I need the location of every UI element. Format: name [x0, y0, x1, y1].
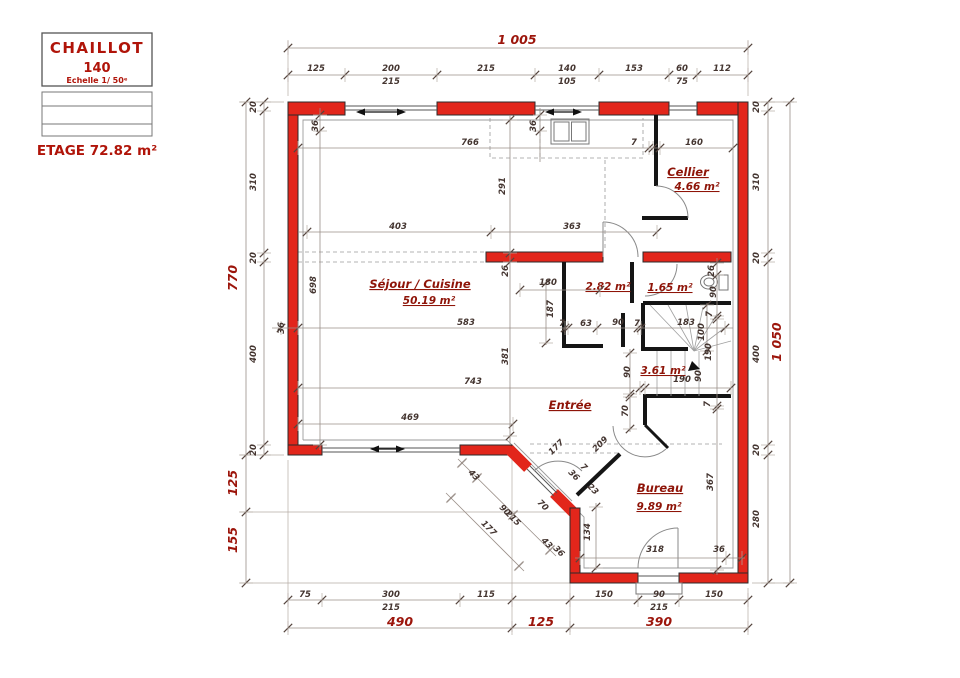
toilet-tank	[719, 275, 728, 290]
room-label-bureau: Bureau	[637, 481, 683, 495]
dim-label: 20	[249, 252, 259, 264]
room-area-bureau: 9.89 m²	[636, 501, 682, 513]
dim-label: 112	[713, 64, 731, 74]
dim-label: 105	[558, 77, 576, 87]
dim-label: 7	[705, 311, 715, 317]
room-label-entree: Entrée	[549, 398, 592, 412]
dim-label: 200	[382, 64, 400, 74]
room-label-sejour-cuisine: Séjour / Cuisine	[369, 277, 471, 291]
dim-label: 140	[558, 64, 576, 74]
dim-label: 390	[646, 614, 672, 629]
wall-top-b	[437, 102, 535, 115]
floor-area-label: ETAGE 72.82 m²	[37, 143, 157, 159]
dimension-annotations: 1 00512520021521514010515360751122031020…	[225, 32, 797, 635]
wall-bottom-a	[570, 573, 638, 583]
wall-left	[288, 102, 298, 455]
dim-label: 400	[249, 345, 259, 364]
dim-label: 583	[457, 318, 475, 328]
wall-bureau-left	[570, 508, 580, 583]
wall-bottom-left-a	[288, 445, 322, 455]
dim-label: 1 005	[497, 32, 536, 47]
dim-label: 280	[752, 510, 762, 528]
floor-plan-canvas: CHAILLOT 140 Echelle 1/ 50ᵉ ETAGE 72.82 …	[0, 0, 960, 678]
dim-label: 177	[479, 519, 499, 539]
dim-label: 70	[621, 405, 631, 417]
dim-label: 63	[580, 319, 592, 329]
stair-direction-arrow	[688, 361, 700, 371]
dim-label: 26	[707, 265, 717, 277]
dim-label: 7	[559, 319, 565, 329]
dim-label: 490	[386, 614, 413, 629]
model-number: 140	[83, 61, 110, 76]
kitchen-sink-outline	[551, 119, 589, 144]
dim-label: 125	[225, 470, 240, 496]
dim-label: 90	[709, 286, 719, 298]
dim-label: 153	[625, 64, 643, 74]
dim-label: 20	[249, 101, 259, 113]
floor-plan-page: CHAILLOT 140 Echelle 1/ 50ᵉ ETAGE 72.82 …	[0, 0, 960, 678]
dim-label: 90	[623, 366, 633, 378]
dim-label: 75	[676, 77, 688, 87]
bath-door-arc	[603, 222, 638, 257]
room-area-cellier: 4.66 m²	[673, 181, 720, 193]
dim-label: 7	[631, 138, 637, 148]
scale-label: Echelle 1/ 50ᵉ	[66, 76, 127, 85]
bureau-door-arc	[613, 426, 666, 457]
dim-label: 70	[535, 498, 550, 513]
wall-bottom-left-b	[460, 445, 512, 455]
dim-label: 310	[752, 173, 762, 191]
dim-label: 215	[477, 64, 495, 74]
dim-label: 367	[706, 473, 716, 491]
dim-label: 20	[249, 444, 259, 456]
dim-label: 134	[583, 523, 593, 541]
dim-label: 125	[528, 614, 554, 629]
dim-label: 215	[382, 603, 400, 613]
dim-label: 90	[653, 590, 665, 600]
dim-label: 698	[309, 276, 319, 294]
bureau-door-leaf	[645, 425, 668, 448]
wall-right	[738, 102, 748, 583]
room-area-bathroom: 2.82 m²	[585, 281, 631, 293]
dim-label: 743	[464, 377, 482, 387]
dim-label: 209	[591, 435, 611, 455]
dim-label: 150	[595, 590, 613, 600]
dim-label: 100	[697, 323, 707, 341]
dim-label: 7	[578, 462, 589, 473]
title-block: CHAILLOT 140 Echelle 1/ 50ᵉ ETAGE 72.82 …	[37, 33, 157, 159]
dim-label: 20	[752, 101, 762, 113]
wall-interior-red-b	[643, 252, 731, 262]
project-name: CHAILLOT	[50, 39, 144, 57]
wall-top-c	[599, 102, 669, 115]
dim-label: 60	[676, 64, 688, 74]
room-label-cellier: Cellier	[667, 165, 710, 179]
dim-label: 90	[612, 318, 624, 328]
room-area-wc: 1.65 m²	[647, 282, 693, 294]
dim-label: 400	[752, 345, 762, 364]
wall-bottom-b	[679, 573, 748, 583]
dim-label: 115	[477, 590, 495, 600]
dim-label: 310	[249, 173, 259, 191]
dim-label: 469	[400, 413, 419, 423]
dim-label: 36	[277, 322, 287, 334]
wall-top-a	[288, 102, 345, 115]
dim-label: 160	[685, 138, 703, 148]
dim-label: 183	[677, 318, 695, 328]
dim-label: 26	[501, 265, 511, 277]
dim-label: 291	[498, 177, 508, 195]
dim-label: 36	[529, 120, 539, 132]
dim-label: 403	[388, 222, 407, 232]
dim-label: 36	[713, 545, 725, 555]
wall-interior-red-a	[486, 252, 603, 262]
dim-label: 155	[225, 527, 240, 553]
dim-label: 75	[299, 590, 311, 600]
dim-label: 190	[673, 375, 691, 385]
dim-label: 20	[752, 252, 762, 264]
dim-label: 36	[566, 468, 581, 483]
dim-label: 1 050	[769, 322, 784, 361]
toilet-bowl-inner	[704, 278, 714, 286]
dim-label: 190	[704, 343, 714, 361]
dim-label: 177	[547, 438, 567, 458]
dim-label: 90	[694, 370, 704, 382]
dim-label: 381	[501, 347, 511, 365]
dim-label: 20	[752, 444, 762, 456]
dim-label: 300	[382, 590, 400, 600]
dim-label: 215	[382, 77, 400, 87]
dim-label: 318	[646, 545, 664, 555]
kitchen-sink-basin-right	[572, 122, 587, 141]
dim-label: 363	[563, 222, 581, 232]
revision-box	[42, 92, 152, 136]
dim-label: 150	[705, 590, 723, 600]
dim-label: 7	[703, 401, 713, 407]
dim-label: 36	[311, 120, 321, 132]
kitchen-sink-basin-left	[554, 122, 569, 141]
dim-label: 770	[225, 265, 240, 291]
dim-label: 187	[546, 300, 556, 318]
extension-lines	[240, 40, 794, 632]
dim-label: 180	[539, 278, 557, 288]
dim-label: 125	[307, 64, 325, 74]
dim-label: 215	[650, 603, 668, 613]
room-area-sejour-cuisine: 50.19 m²	[403, 295, 456, 307]
dim-label: 766	[461, 138, 479, 148]
dim-label: 43	[465, 467, 481, 483]
dim-label: 7	[634, 319, 640, 329]
